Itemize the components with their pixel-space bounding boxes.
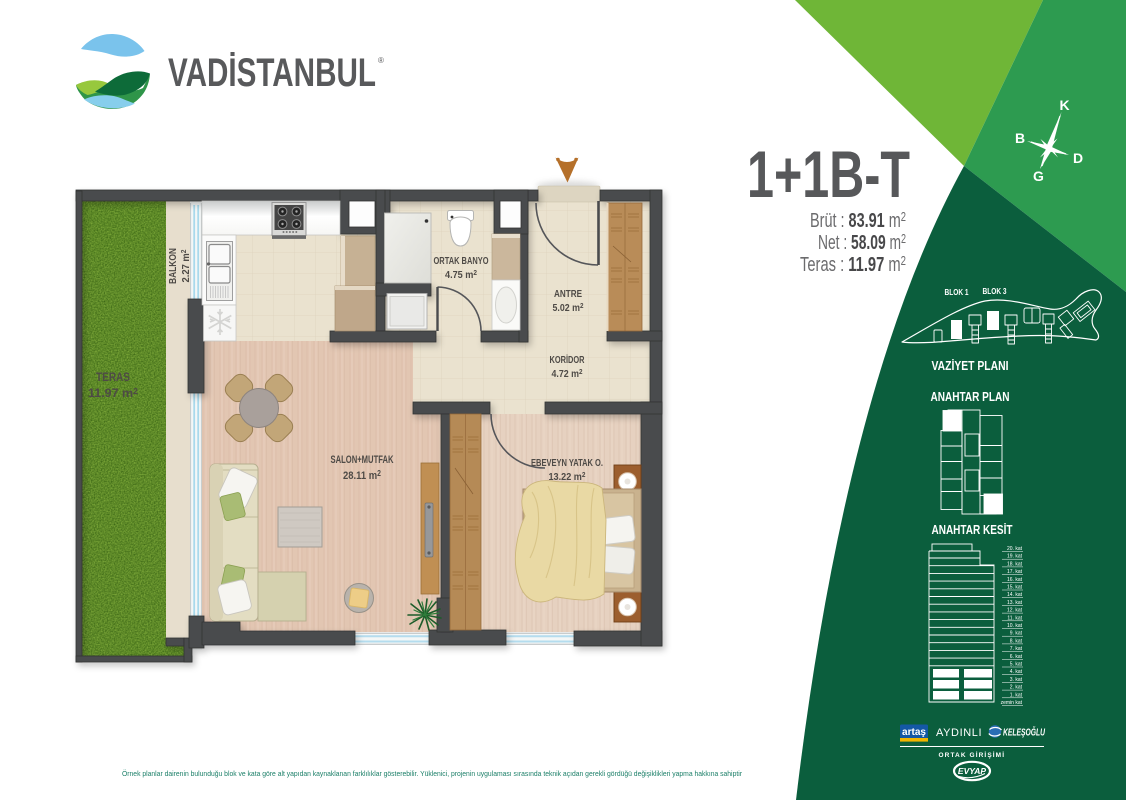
svg-text:18. kat: 18. kat [1007, 561, 1023, 567]
svg-text:11.97 m2: 11.97 m2 [88, 387, 139, 400]
svg-text:BLOK 3: BLOK 3 [983, 286, 1007, 296]
svg-text:13. kat: 13. kat [1007, 600, 1023, 606]
svg-text:VAZİYET PLANI: VAZİYET PLANI [932, 358, 1009, 373]
svg-text:Teras : 11.97 m2: Teras : 11.97 m2 [800, 253, 906, 276]
svg-text:Net : 58.09 m2: Net : 58.09 m2 [818, 231, 906, 254]
svg-text:D: D [1073, 150, 1083, 166]
svg-text:19. kat: 19. kat [1007, 554, 1023, 560]
svg-text:12. kat: 12. kat [1007, 608, 1023, 614]
svg-text:2.27 m2: 2.27 m2 [179, 250, 192, 283]
svg-text:4.75 m2: 4.75 m2 [445, 268, 477, 281]
svg-text:11. kat: 11. kat [1007, 615, 1022, 621]
svg-text:ORTAK BANYO: ORTAK BANYO [434, 255, 489, 267]
svg-text:4.72 m2: 4.72 m2 [552, 367, 583, 380]
svg-text:KORİDOR: KORİDOR [550, 353, 585, 366]
svg-text:13.22 m2: 13.22 m2 [549, 470, 586, 483]
svg-text:14. kat: 14. kat [1007, 592, 1023, 598]
svg-text:5. kat: 5. kat [1010, 662, 1023, 668]
svg-text:ANAHTAR PLAN: ANAHTAR PLAN [931, 389, 1010, 404]
svg-text:G: G [1033, 168, 1044, 184]
svg-text:EBEVEYN YATAK O.: EBEVEYN YATAK O. [531, 457, 603, 469]
svg-text:7. kat: 7. kat [1010, 646, 1023, 652]
svg-text:8. kat: 8. kat [1010, 638, 1023, 644]
svg-text:AYDINLI: AYDINLI [936, 727, 983, 739]
svg-text:B: B [1015, 130, 1025, 146]
svg-text:ANTRE: ANTRE [554, 288, 582, 300]
svg-text:ORTAK GİRİŞİMİ: ORTAK GİRİŞİMİ [939, 751, 1006, 759]
svg-text:6. kat: 6. kat [1010, 654, 1023, 660]
svg-text:3. kat: 3. kat [1010, 677, 1023, 683]
svg-text:10. kat: 10. kat [1007, 623, 1023, 629]
svg-text:Brüt : 83.91 m2: Brüt : 83.91 m2 [810, 209, 906, 232]
svg-text:1+1B-T: 1+1B-T [747, 137, 910, 211]
svg-text:SALON+MUTFAK: SALON+MUTFAK [331, 454, 394, 466]
svg-text:2. kat: 2. kat [1010, 685, 1023, 691]
svg-text:zemin kat: zemin kat [1001, 700, 1023, 706]
svg-text:®: ® [378, 56, 384, 65]
svg-text:BALKON: BALKON [167, 248, 179, 284]
svg-text:1. kat: 1. kat [1010, 692, 1023, 698]
svg-text:16. kat: 16. kat [1007, 577, 1023, 583]
svg-text:28.11 m2: 28.11 m2 [343, 469, 381, 482]
svg-text:artaş: artaş [902, 727, 926, 738]
svg-text:ANAHTAR KESİT: ANAHTAR KESİT [932, 522, 1013, 537]
svg-text:BLOK 1: BLOK 1 [945, 287, 969, 297]
svg-text:9. kat: 9. kat [1010, 631, 1023, 637]
svg-text:KELEŞOĞLU: KELEŞOĞLU [1003, 726, 1046, 739]
svg-text:20. kat: 20. kat [1007, 546, 1023, 552]
svg-text:K: K [1059, 97, 1069, 113]
svg-text:Örnek planlar dairenin bulundu: Örnek planlar dairenin bulunduğu blok ve… [122, 769, 743, 778]
svg-text:17. kat: 17. kat [1007, 569, 1023, 575]
svg-text:VADİSTANBUL: VADİSTANBUL [168, 51, 376, 95]
svg-text:4. kat: 4. kat [1010, 669, 1023, 675]
svg-text:5.02 m2: 5.02 m2 [553, 301, 584, 314]
svg-text:15. kat: 15. kat [1007, 585, 1023, 591]
svg-text:TERAS: TERAS [96, 372, 130, 384]
